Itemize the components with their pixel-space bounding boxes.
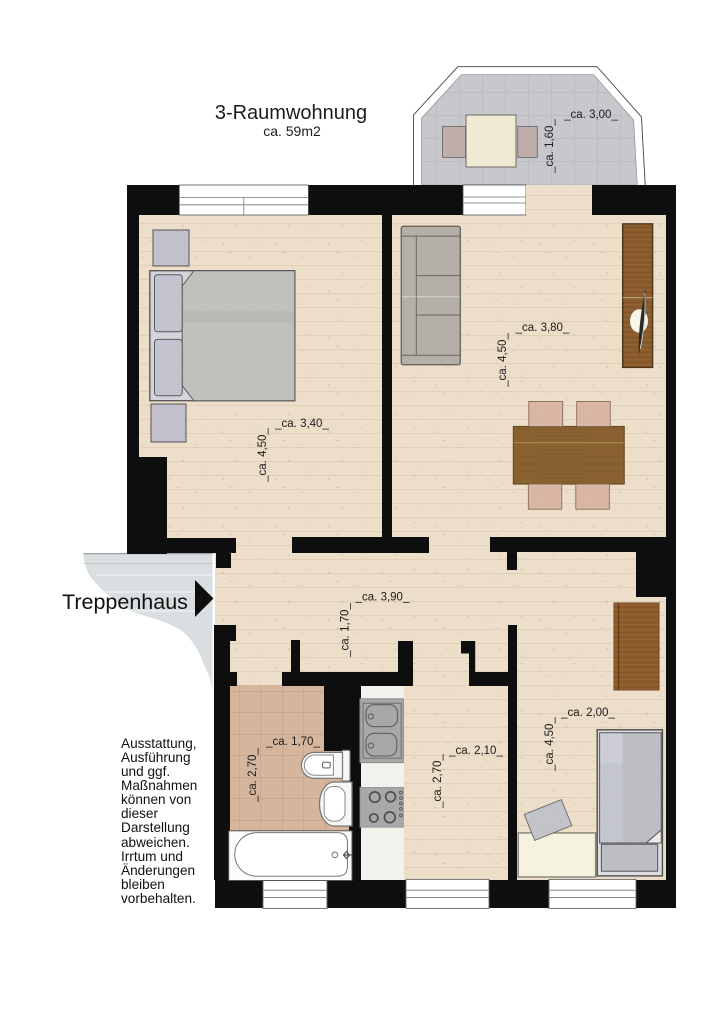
svg-text:Maßnahmen: Maßnahmen [121,778,197,793]
svg-text:_ca. 4,50_: _ca. 4,50_ [497,333,509,388]
svg-text:Darstellung: Darstellung [121,820,190,835]
svg-text:_ca. 2,00_: _ca. 2,00_ [560,707,615,719]
svg-text:_ca. 2,70_: _ca. 2,70_ [247,748,259,803]
svg-text:abweichen.: abweichen. [121,835,190,850]
svg-text:_ca. 1,70_: _ca. 1,70_ [265,736,320,748]
svg-text:_ca. 2,10_: _ca. 2,10_ [448,745,503,757]
svg-text:_ca. 4,50_: _ca. 4,50_ [544,717,556,772]
svg-text:_ca. 3,80_: _ca. 3,80_ [515,322,570,334]
svg-text:Änderungen: Änderungen [121,863,195,878]
svg-text:_ca. 2,70_: _ca. 2,70_ [432,754,444,809]
svg-text:können von: können von [121,792,191,807]
svg-text:Ausführung: Ausführung [121,750,191,765]
svg-text:_ca. 3,00_: _ca. 3,00_ [563,109,618,121]
svg-text:ca. 59m2: ca. 59m2 [263,123,321,139]
svg-text:dieser: dieser [121,806,158,821]
svg-text:3-Raumwohnung: 3-Raumwohnung [215,102,367,124]
svg-text:_ca. 1,60_: _ca. 1,60_ [544,119,556,174]
svg-text:_ca. 3,90_: _ca. 3,90_ [355,592,410,604]
svg-text:Irrtum und: Irrtum und [121,849,183,864]
svg-text:bleiben: bleiben [121,877,165,892]
svg-text:_ca. 3,40_: _ca. 3,40_ [274,418,329,430]
svg-text:vorbehalten.: vorbehalten. [121,891,196,906]
svg-text:Treppenhaus: Treppenhaus [62,590,188,614]
svg-text:_ca. 4,50_: _ca. 4,50_ [257,428,269,483]
svg-text:und ggf.: und ggf. [121,764,170,779]
svg-text:Ausstattung,: Ausstattung, [121,736,197,751]
svg-text:_ca. 1,70_: _ca. 1,70_ [340,603,352,658]
